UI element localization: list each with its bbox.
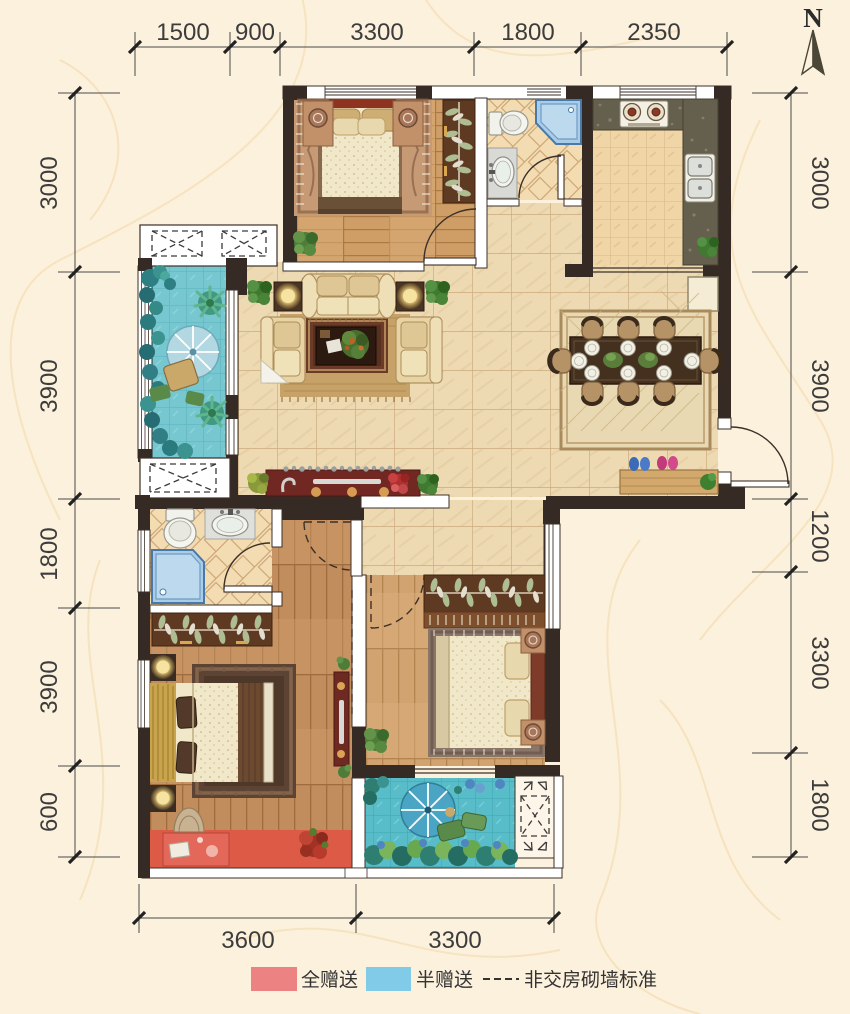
svg-text:3900: 3900 bbox=[36, 359, 63, 412]
svg-text:半赠送: 半赠送 bbox=[416, 969, 473, 991]
svg-text:1200: 1200 bbox=[806, 509, 833, 562]
svg-text:1800: 1800 bbox=[36, 527, 63, 580]
svg-text:N: N bbox=[803, 3, 823, 33]
svg-text:3900: 3900 bbox=[36, 660, 63, 713]
svg-text:3000: 3000 bbox=[806, 156, 833, 209]
svg-text:600: 600 bbox=[36, 792, 63, 832]
svg-text:3300: 3300 bbox=[350, 19, 403, 46]
svg-text:1500: 1500 bbox=[156, 19, 209, 46]
svg-text:3300: 3300 bbox=[806, 636, 833, 689]
svg-text:全赠送: 全赠送 bbox=[301, 969, 358, 991]
svg-text:3000: 3000 bbox=[36, 156, 63, 209]
svg-text:1800: 1800 bbox=[501, 19, 554, 46]
svg-text:900: 900 bbox=[235, 19, 275, 46]
svg-text:3900: 3900 bbox=[806, 359, 833, 412]
svg-text:非交房砌墙标准: 非交房砌墙标准 bbox=[524, 969, 657, 991]
svg-text:2350: 2350 bbox=[627, 19, 680, 46]
svg-text:3300: 3300 bbox=[428, 927, 481, 954]
svg-text:1800: 1800 bbox=[806, 778, 833, 831]
svg-text:3600: 3600 bbox=[221, 927, 274, 954]
